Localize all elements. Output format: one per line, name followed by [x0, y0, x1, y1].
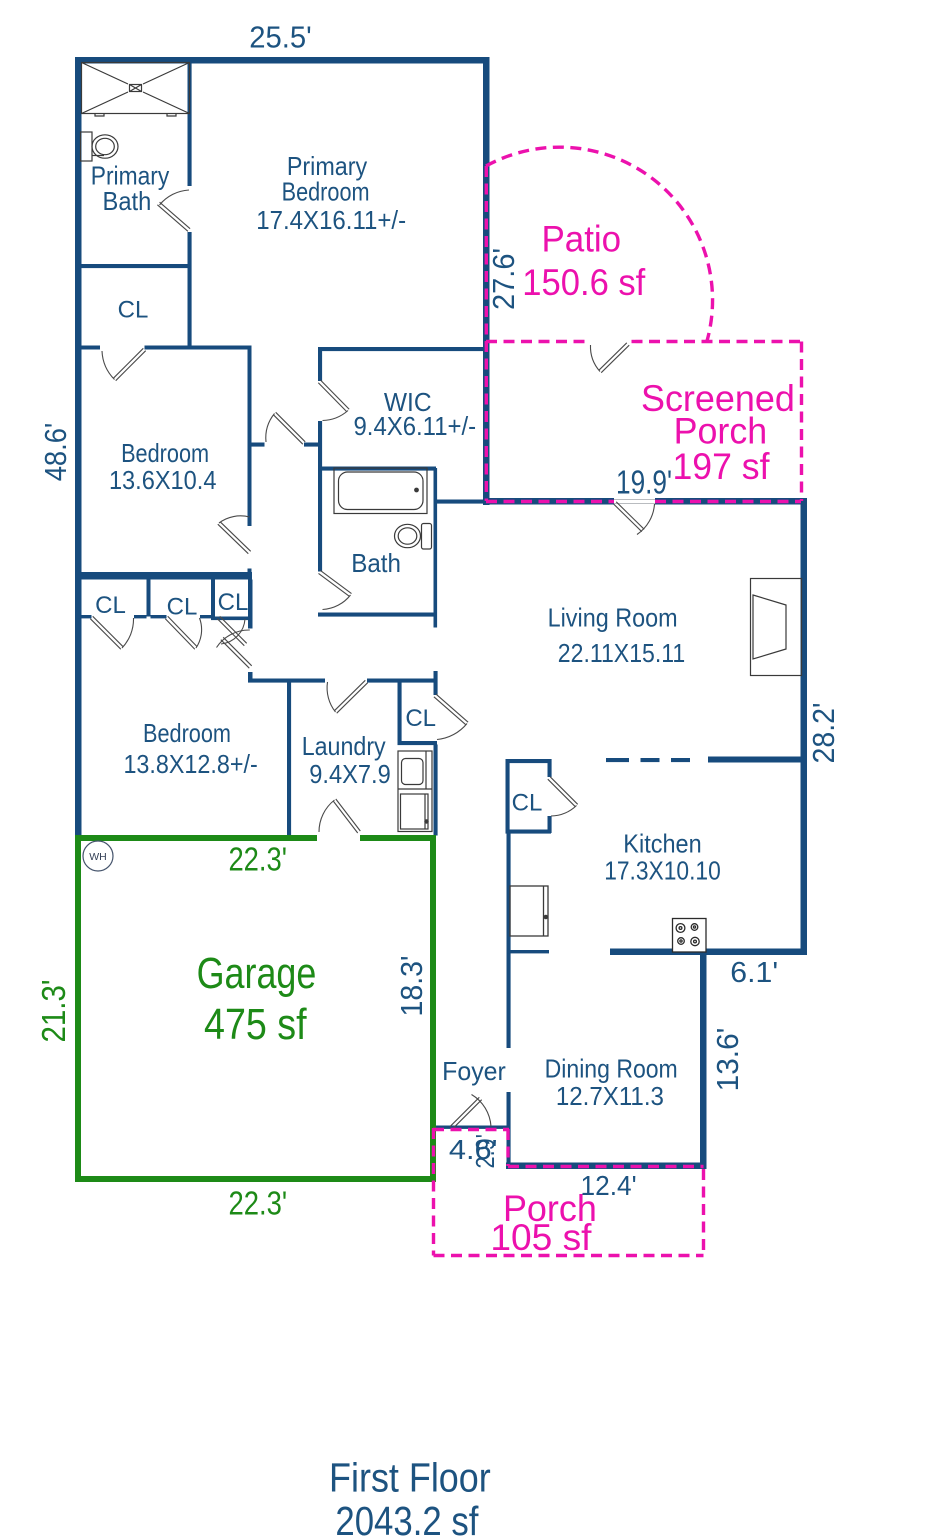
svg-text:25.5': 25.5' [249, 20, 312, 55]
svg-text:13.6X10.4: 13.6X10.4 [109, 465, 217, 495]
svg-text:CL: CL [95, 592, 126, 619]
svg-text:Laundry: Laundry [302, 731, 386, 761]
svg-text:CL: CL [167, 594, 198, 621]
svg-text:Bedroom: Bedroom [143, 718, 231, 748]
svg-text:CL: CL [218, 589, 249, 616]
svg-text:18.3': 18.3' [394, 956, 429, 1017]
svg-text:22.3': 22.3' [229, 1185, 288, 1222]
svg-text:17.4X16.11+/-: 17.4X16.11+/- [256, 205, 406, 235]
svg-text:12.7X11.3: 12.7X11.3 [556, 1081, 664, 1111]
svg-text:17.3X10.10: 17.3X10.10 [604, 856, 721, 886]
svg-text:Dining Room: Dining Room [545, 1054, 678, 1084]
svg-text:Foyer: Foyer [442, 1056, 506, 1086]
svg-text:Garage: Garage [197, 949, 317, 998]
svg-text:27.6': 27.6' [486, 248, 521, 310]
svg-text:Patio: Patio [541, 218, 621, 259]
svg-text:Bath: Bath [351, 548, 401, 578]
svg-text:6.1': 6.1' [730, 957, 778, 989]
svg-text:CL: CL [405, 705, 436, 732]
svg-text:475 sf: 475 sf [204, 1000, 307, 1049]
svg-text:22.11X15.11: 22.11X15.11 [558, 638, 685, 668]
svg-text:WH: WH [89, 851, 107, 863]
svg-text:Bedroom: Bedroom [282, 177, 370, 207]
svg-text:105 sf: 105 sf [490, 1217, 592, 1258]
svg-text:First Floor: First Floor [329, 1454, 491, 1500]
svg-text:Bath: Bath [103, 186, 152, 216]
svg-text:2.9': 2.9' [470, 1134, 500, 1168]
svg-text:2043.2 sf: 2043.2 sf [335, 1498, 479, 1536]
svg-text:CL: CL [118, 297, 149, 324]
svg-text:CL: CL [512, 789, 543, 816]
svg-text:150.6 sf: 150.6 sf [522, 262, 646, 303]
svg-text:19.9': 19.9' [616, 464, 672, 501]
svg-text:Kitchen: Kitchen [623, 829, 701, 859]
svg-text:9.4X6.11+/-: 9.4X6.11+/- [354, 411, 477, 441]
svg-text:197 sf: 197 sf [673, 446, 771, 487]
svg-text:Bedroom: Bedroom [121, 438, 209, 468]
svg-text:Living Room: Living Room [548, 602, 678, 632]
svg-text:13.8X12.8+/-: 13.8X12.8+/- [123, 749, 257, 779]
svg-text:21.3': 21.3' [35, 980, 72, 1043]
svg-text:9.4X7.9: 9.4X7.9 [309, 759, 391, 789]
svg-text:13.6': 13.6' [710, 1028, 745, 1092]
svg-text:28.2': 28.2' [806, 703, 841, 764]
svg-text:48.6': 48.6' [38, 423, 73, 482]
svg-text:22.3': 22.3' [228, 840, 287, 877]
